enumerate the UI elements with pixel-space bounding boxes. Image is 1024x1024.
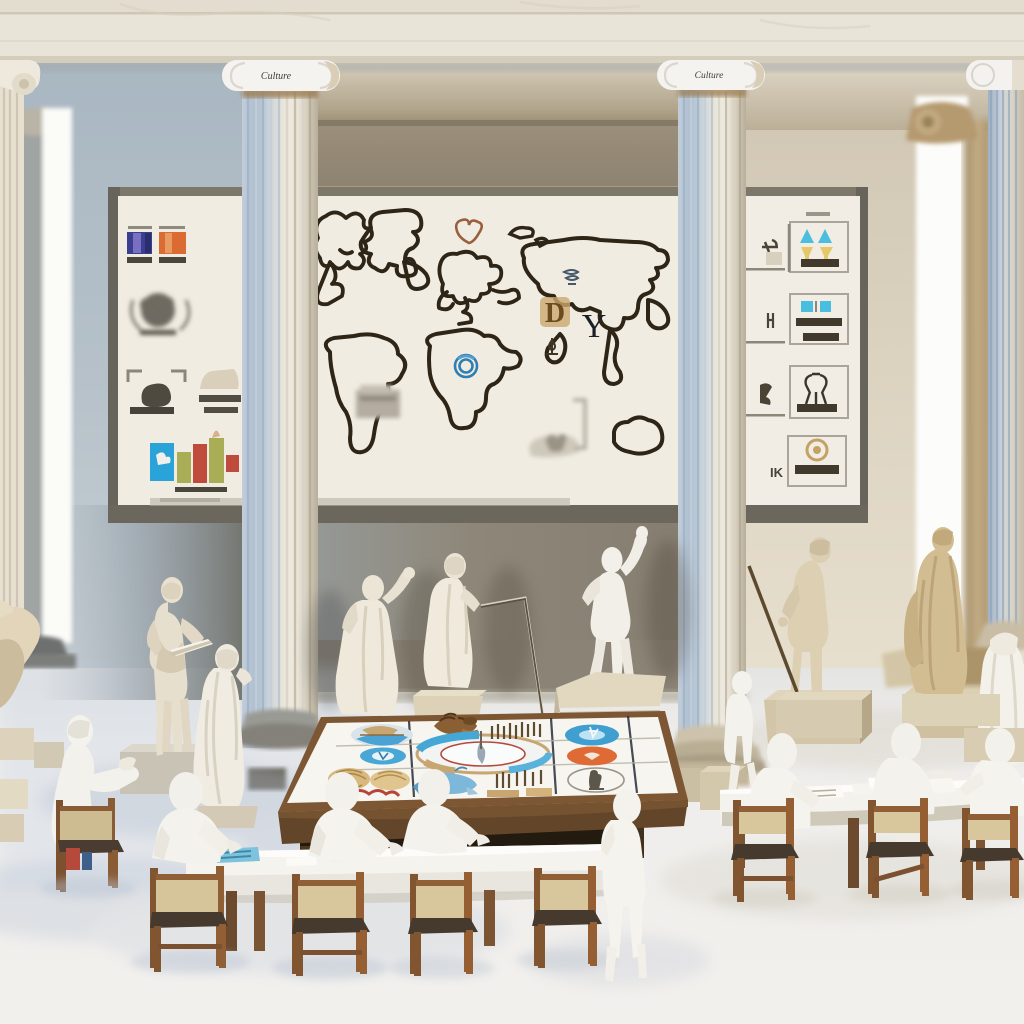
svg-text:Y: Y [582,308,607,345]
svg-text:IK: IK [770,465,784,480]
svg-text:D: D [545,298,565,329]
svg-text:Culture: Culture [695,71,724,81]
svg-text:Culture: Culture [261,71,292,82]
